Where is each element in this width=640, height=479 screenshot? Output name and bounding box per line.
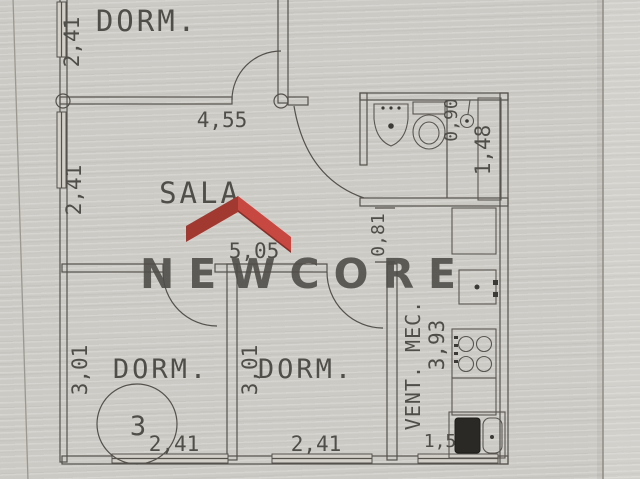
faucet-mark bbox=[493, 280, 498, 285]
dim-sala-left: 2,41 bbox=[62, 165, 86, 216]
dim-kitchen-height: 3,93 bbox=[425, 320, 449, 371]
faucet-dot bbox=[389, 106, 392, 109]
door-arc-dorm-top bbox=[232, 51, 281, 100]
kitchen-sink-drain bbox=[475, 285, 480, 290]
laundry-tank-basin bbox=[455, 418, 480, 453]
dim-dorm-center-width: 2,41 bbox=[291, 432, 342, 456]
stove-burner bbox=[477, 337, 492, 352]
wall-bathroom-top bbox=[360, 93, 508, 100]
stove-burner bbox=[459, 357, 474, 372]
dim-dorm-center-height: 3,01 bbox=[238, 345, 262, 396]
wall-left-exterior bbox=[60, 0, 67, 462]
stove-knob bbox=[454, 344, 458, 347]
fridge-icon bbox=[452, 208, 496, 254]
kitchen-counter bbox=[452, 378, 496, 415]
dim-kitchen-bottom: 1,5 bbox=[424, 431, 457, 452]
dim-bathroom-shower: 0,90 bbox=[441, 98, 462, 141]
hinge-circle-left bbox=[56, 94, 70, 108]
room-label-vent-mec: VENT. MEC. bbox=[401, 300, 425, 430]
furniture-circle-number: 3 bbox=[130, 411, 146, 442]
room-label-dorm-left: DORM. bbox=[113, 354, 209, 385]
hinge-circle-top bbox=[274, 94, 288, 108]
dim-dorm-top-left: 2,41 bbox=[60, 17, 84, 68]
shower-dot bbox=[465, 119, 469, 123]
paper-right-strip bbox=[604, 0, 640, 479]
dim-bathroom-height: 1,48 bbox=[471, 125, 495, 176]
wall-dormtop-sala bbox=[60, 97, 232, 104]
wall-bathroom-left bbox=[360, 93, 367, 165]
watermark: NEWCORE bbox=[140, 196, 470, 298]
wall-bathroom-bottom bbox=[360, 198, 508, 206]
floor-plan-photo: DORM. 2,41 4,55 SALA 2,41 5,05 0,90 1,48… bbox=[0, 0, 640, 479]
boundary-line bbox=[13, 0, 28, 479]
shower-stem bbox=[468, 100, 470, 114]
paper-fold-shadow bbox=[597, 0, 603, 479]
stove-knob bbox=[454, 360, 458, 363]
stove-icon bbox=[452, 329, 496, 378]
door-arc-hall bbox=[294, 106, 364, 198]
faucet-dot bbox=[381, 106, 384, 109]
dim-sala-top: 4,55 bbox=[197, 108, 248, 132]
faucet-dot bbox=[397, 106, 400, 109]
toilet-bowl-inner bbox=[419, 122, 439, 144]
watermark-text: NEWCORE bbox=[140, 250, 470, 298]
faucet-mark bbox=[493, 292, 498, 297]
stove-knob bbox=[454, 352, 458, 355]
dim-dorm-left-width: 2,41 bbox=[149, 432, 200, 456]
wall-pier-top bbox=[288, 97, 308, 105]
room-label-dorm-center: DORM. bbox=[258, 354, 354, 385]
room-label-dorm-top: DORM. bbox=[96, 4, 198, 38]
stove-burner bbox=[459, 337, 474, 352]
stove-burner bbox=[477, 357, 492, 372]
sink-drain-dot bbox=[388, 123, 394, 129]
dim-dorm-left-height: 3,01 bbox=[68, 345, 92, 396]
floor-plan-svg: DORM. 2,41 4,55 SALA 2,41 5,05 0,90 1,48… bbox=[0, 0, 640, 479]
stove-knob bbox=[454, 336, 458, 339]
laundry-drain-dot bbox=[490, 435, 494, 439]
kitchen-fixtures bbox=[449, 208, 505, 458]
